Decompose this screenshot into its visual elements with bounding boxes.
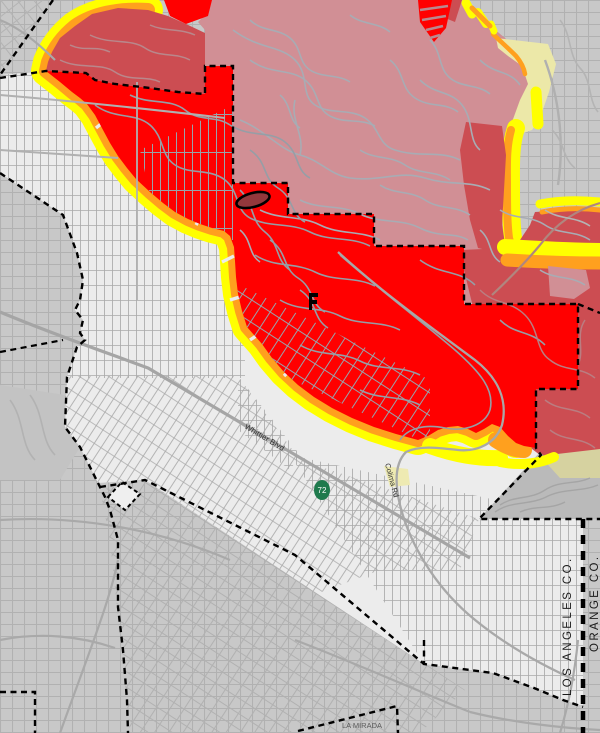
svg-text:LA MIRADA: LA MIRADA — [342, 721, 382, 730]
svg-text:72: 72 — [318, 486, 327, 495]
svg-text:ORANGE CO.: ORANGE CO. — [589, 555, 600, 652]
svg-text:LOS ANGELES CO.: LOS ANGELES CO. — [562, 556, 574, 696]
